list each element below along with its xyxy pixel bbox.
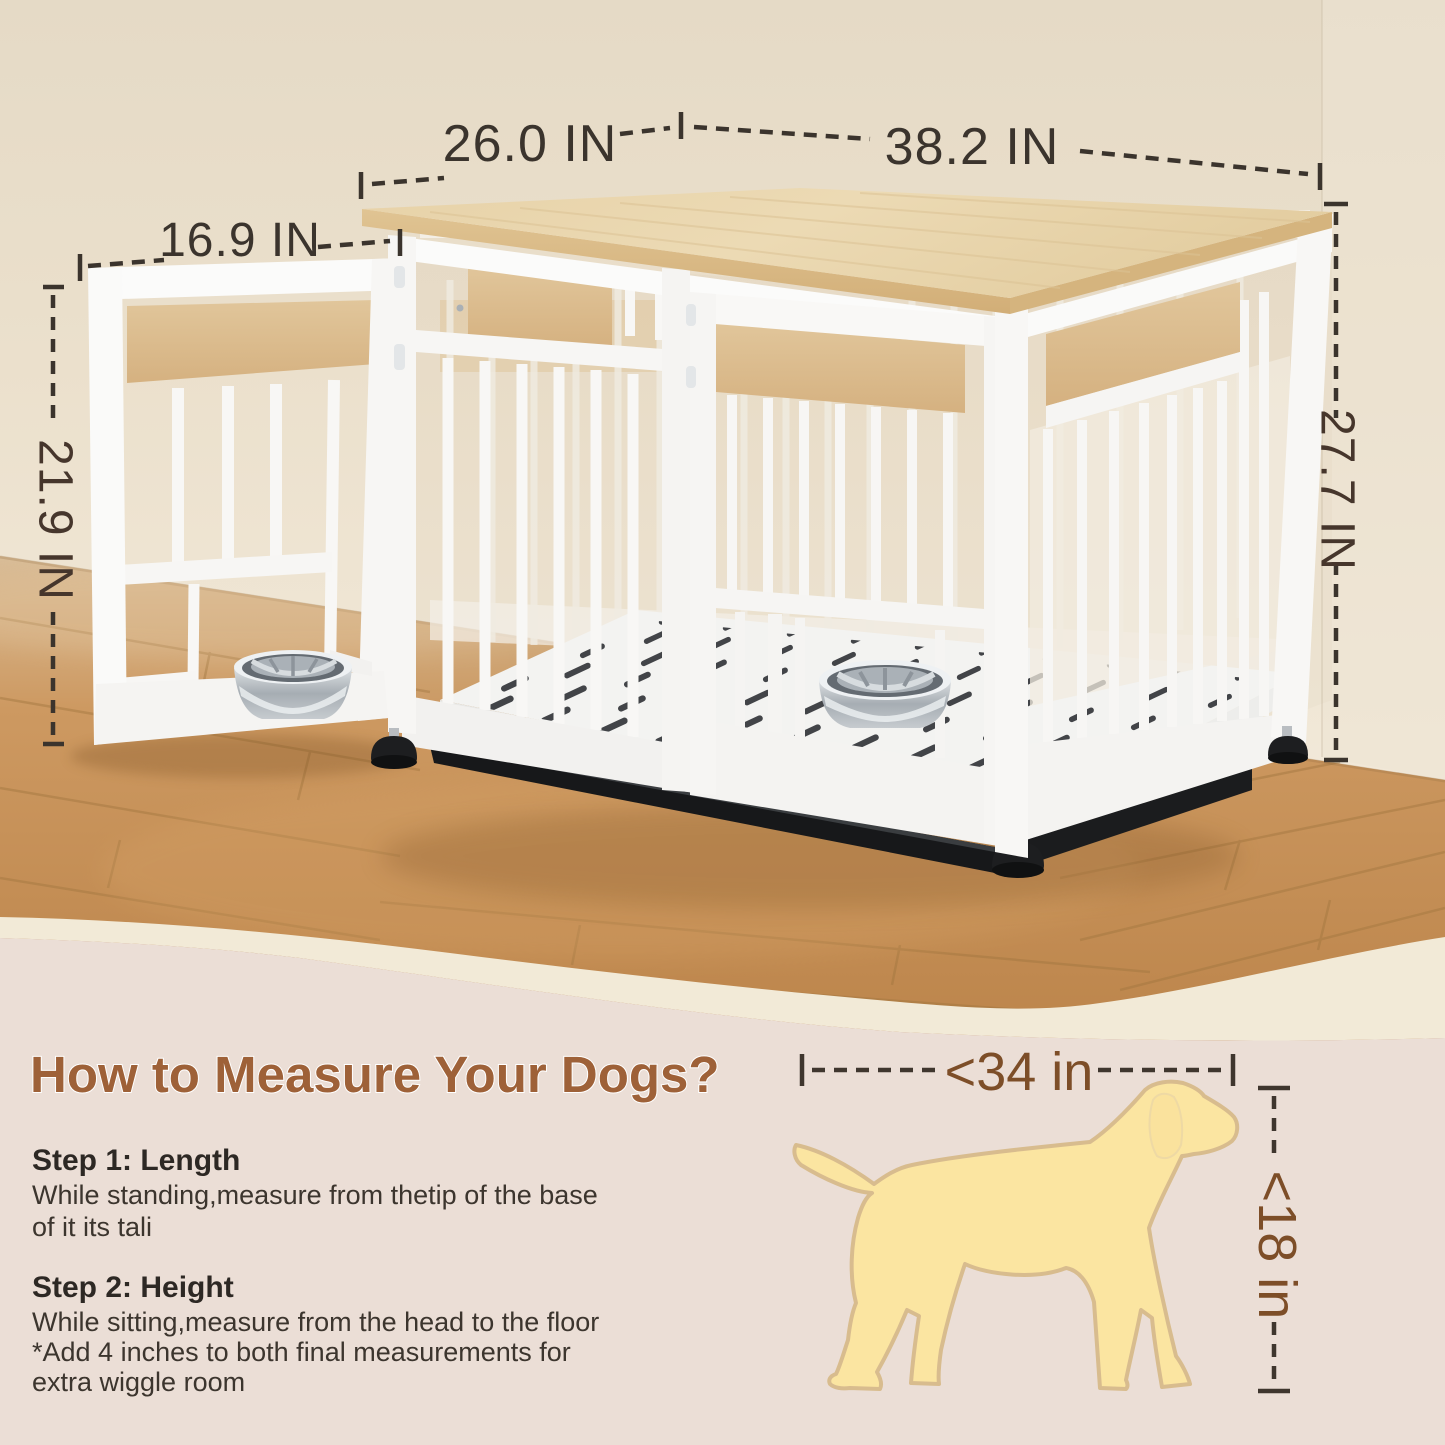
svg-text:26.0 IN: 26.0 IN — [443, 115, 618, 173]
svg-text:38.2 IN: 38.2 IN — [885, 118, 1060, 176]
svg-text:Step 1: Length: Step 1: Length — [32, 1144, 240, 1177]
svg-text:<18 in: <18 in — [1247, 1171, 1307, 1320]
svg-text:While sitting,measure from the: While sitting,measure from the head to t… — [32, 1307, 599, 1337]
svg-text:extra wiggle room: extra wiggle room — [32, 1367, 245, 1397]
svg-text:of it its tali: of it its tali — [32, 1212, 152, 1242]
svg-text:*Add 4 inches to both final me: *Add 4 inches to both final measurements… — [32, 1337, 571, 1367]
svg-text:21.9 IN: 21.9 IN — [29, 439, 82, 601]
svg-text:How to Measure Your Dogs?: How to Measure Your Dogs? — [30, 1046, 720, 1103]
svg-text:While standing,measure from th: While standing,measure from thetip of th… — [32, 1180, 598, 1210]
svg-text:16.9 IN: 16.9 IN — [159, 214, 321, 267]
svg-text:27.7 IN: 27.7 IN — [1311, 409, 1364, 571]
svg-text:Step 2: Height: Step 2: Height — [32, 1271, 234, 1304]
svg-text:<34 in: <34 in — [945, 1042, 1094, 1102]
